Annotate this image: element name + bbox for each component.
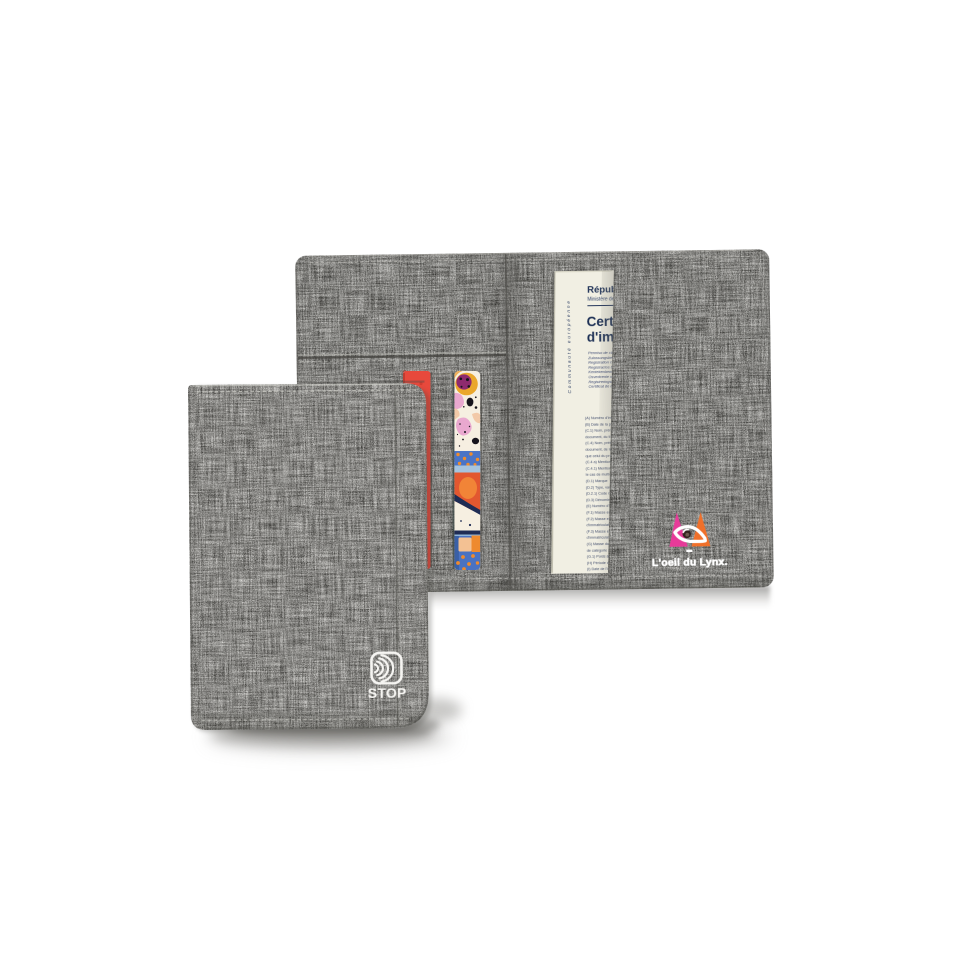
svg-text:L'oeil du Lynx.: L'oeil du Lynx. — [652, 556, 728, 569]
svg-text:STOP: STOP — [368, 684, 407, 700]
